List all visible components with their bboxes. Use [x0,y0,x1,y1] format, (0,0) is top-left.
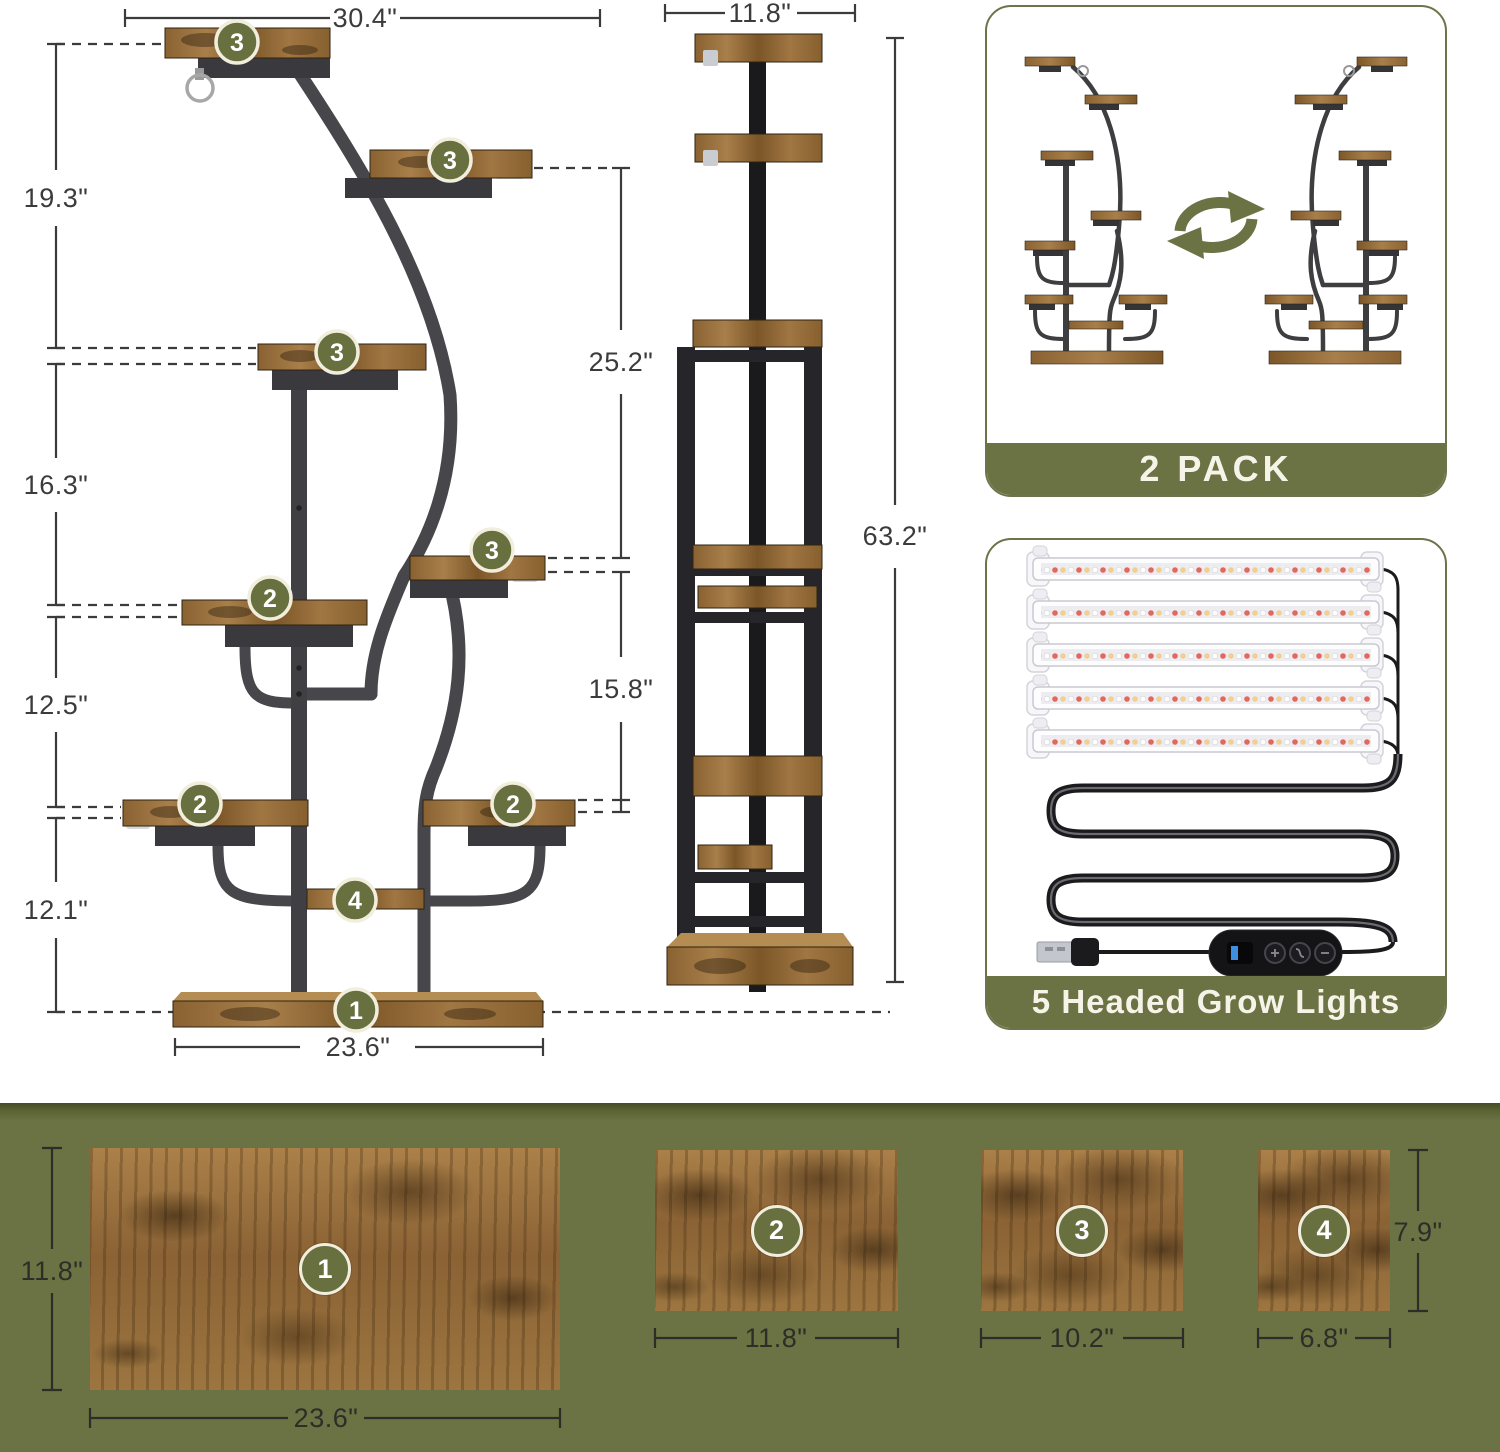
panel-4-width-label: 6.8" [1299,1323,1348,1353]
mini-stand-left [1025,57,1167,364]
two-pack-illustration [987,7,1445,445]
shelf-panel-4: 4 [1258,1150,1390,1311]
panel-badge-1: 1 [299,1243,351,1295]
shelf-badge: 3 [216,21,258,63]
side-base [667,933,853,985]
dim-height-1-label: 19.3" [24,183,89,213]
dimension-diagram: 30.4" 19.3" 16.3" 12.5" 12.1" 25.2" 15.8… [0,0,985,1105]
shelf-badge: 2 [249,577,291,619]
shelf-badge: 3 [429,139,471,181]
shelf-badge: 1 [335,989,377,1031]
two-pack-banner: 2 PACK [987,443,1445,495]
dim-height-4-label: 12.1" [24,895,89,925]
shelf-badge: 3 [316,331,358,373]
grow-light-bar [1027,546,1383,592]
grow-lights-card: 5 Headed Grow Lights [985,538,1447,1030]
shelf-clips [126,166,538,829]
badge-label: 3 [330,339,344,367]
grow-light-bars [1027,546,1383,764]
dim-total-height-label: 63.2" [863,521,928,551]
timer-display [1231,946,1238,960]
shelf-panel-2: 2 [655,1150,898,1311]
shelf-size-strip: 1 2 3 4 [0,1103,1500,1452]
badge-label: 3 [230,29,244,57]
grow-light-bar [1027,718,1383,764]
badge-label: 3 [485,537,499,565]
dim-lower-gap-label: 15.8" [589,674,654,704]
shelf-panel-1: 1 [90,1148,560,1390]
mini-stand-right [1265,57,1407,364]
grow-lights-illustration [987,540,1445,978]
shelf-badge: 4 [334,879,376,921]
usb-plug-icon [1037,938,1209,966]
dim-height-3-label: 12.5" [24,690,89,720]
badge-label: 2 [193,791,207,819]
power-cable [1051,754,1398,942]
panel-badge-2: 2 [751,1205,803,1257]
dim-side-top-width-label: 11.8" [729,0,792,28]
panel-4-depth-label: 7.9" [1393,1217,1442,1247]
dim-top-width-label: 30.4" [333,3,398,33]
shelf-badge: 3 [471,529,513,571]
badge-label: 2 [506,791,520,819]
badge-label: 2 [263,585,277,613]
badge-label: 1 [349,997,363,1025]
grow-light-bar [1027,675,1383,721]
panel-badge-4: 4 [1298,1205,1350,1257]
badge-label: 4 [348,887,362,915]
side-view-stand [667,34,853,992]
panel-badge-3: 3 [1056,1205,1108,1257]
product-dimension-sheet: 30.4" 19.3" 16.3" 12.5" 12.1" 25.2" 15.8… [0,0,1500,1452]
light-controller [1209,930,1393,976]
shelf-badge: 2 [492,783,534,825]
panel-1-depth-label: 11.8" [21,1256,84,1286]
dim-height-2-label: 16.3" [24,470,89,500]
two-pack-card: 2 PACK [985,5,1447,497]
swap-arrows-icon [1167,191,1265,259]
dim-upper-gap-label: 25.2" [589,347,654,377]
grow-lights-banner-label: 5 Headed Grow Lights [1032,983,1400,1021]
grow-light-bar [1027,632,1383,678]
shelf-badge: 2 [179,783,221,825]
panel-1-width-label: 23.6" [294,1403,359,1433]
grow-light-bar [1027,589,1383,635]
dim-base-width-label: 23.6" [326,1032,391,1062]
panel-3-width-label: 10.2" [1050,1323,1115,1353]
grow-lights-banner: 5 Headed Grow Lights [987,976,1445,1028]
shelf-panel-3: 3 [981,1150,1183,1311]
two-pack-banner-label: 2 PACK [1139,448,1292,490]
panel-2-width-label: 11.8" [745,1323,808,1353]
front-view-stand [123,28,575,1027]
badge-label: 3 [443,147,457,175]
